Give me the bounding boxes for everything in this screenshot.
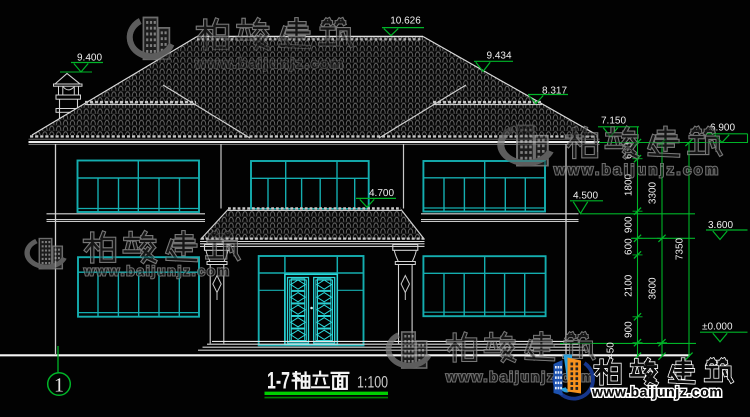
svg-text:±0.000: ±0.000 (702, 322, 733, 333)
svg-text:1:100: 1:100 (357, 373, 388, 391)
svg-text:3.600: 3.600 (708, 220, 733, 231)
svg-text:1: 1 (54, 375, 64, 397)
svg-text:9.400: 9.400 (77, 53, 102, 64)
svg-text:900: 900 (624, 216, 635, 233)
svg-text:450: 450 (606, 342, 617, 359)
svg-text:600: 600 (624, 238, 635, 255)
svg-text:4.500: 4.500 (573, 191, 598, 202)
svg-text:3600: 3600 (648, 277, 659, 300)
svg-text:4.700: 4.700 (369, 188, 394, 199)
svg-text:1-7: 1-7 (267, 367, 290, 394)
svg-text:7350: 7350 (675, 237, 686, 260)
svg-text:10.626: 10.626 (390, 16, 421, 27)
svg-text:3300: 3300 (648, 181, 659, 204)
svg-text:2100: 2100 (624, 274, 635, 297)
svg-text:9.434: 9.434 (487, 51, 512, 62)
svg-text:900: 900 (624, 321, 635, 338)
svg-text:www.baijunjz.com: www.baijunjz.com (591, 384, 722, 400)
svg-text:7.150: 7.150 (601, 116, 626, 127)
